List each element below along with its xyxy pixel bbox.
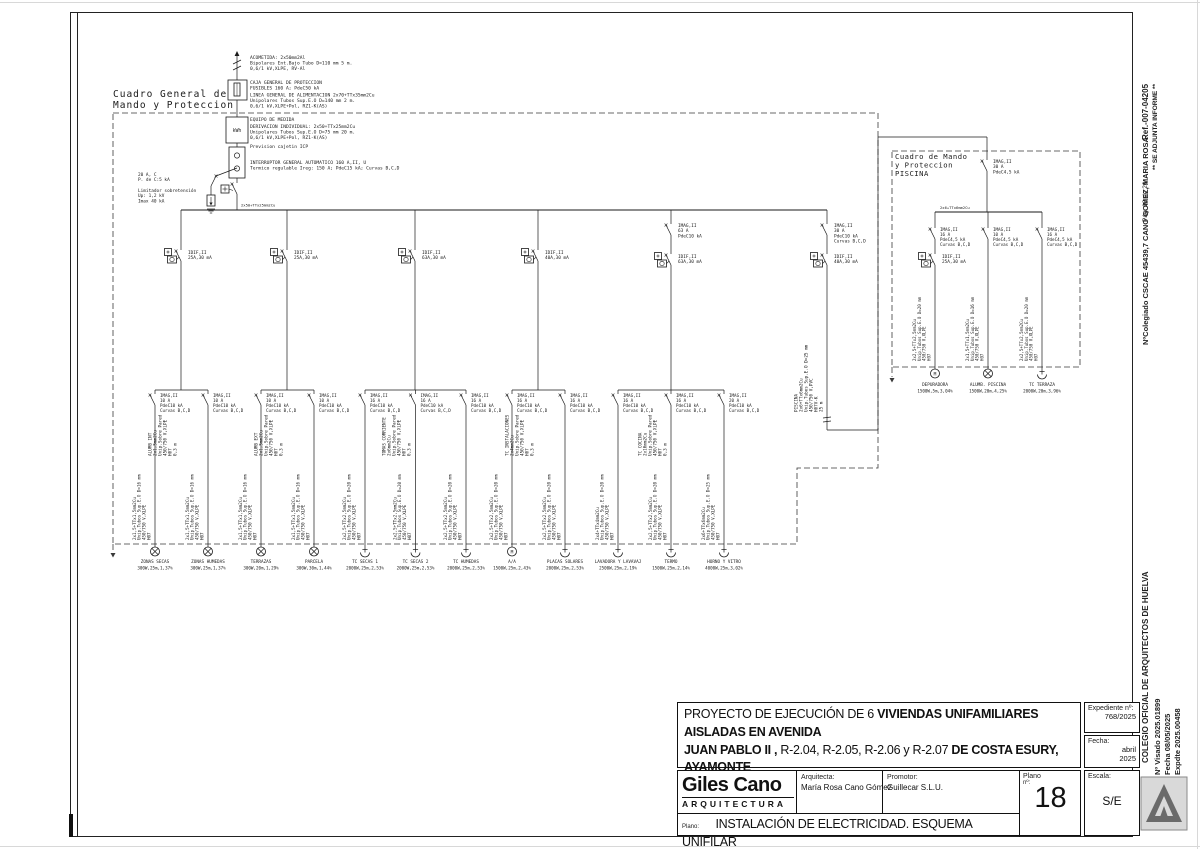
load-name: ZONAS SECAS [141, 559, 170, 565]
service-text: Unipolares Tubos Sup.E.O D=140 mm 2 m. [250, 98, 355, 104]
expediente-value: 768/2025 [1088, 712, 1136, 721]
surge-branch-wire [216, 168, 237, 176]
piscina-breaker-label: Curvas B,C,D [1047, 242, 1078, 247]
icp-box [229, 147, 245, 178]
breaker-switch-icon [203, 395, 208, 405]
differential-link [931, 261, 934, 264]
breaker-switch-icon [982, 161, 987, 171]
differential-link [177, 257, 180, 260]
plano-label: Plano [1019, 771, 1082, 780]
divider [678, 813, 1019, 814]
branch-breaker-label: PdeC10 kA [834, 233, 858, 239]
escala-value: S/E [1088, 794, 1136, 808]
expediente-box: Expediente nº: 768/2025 [1084, 702, 1140, 733]
break-tick-icon [823, 421, 831, 422]
iga-link [229, 189, 233, 191]
load-name: TERMO [665, 559, 678, 565]
cable-label-line: 0,3 m [173, 443, 179, 456]
schematic-canvas: kWhACOMETIDA: 2x50mm2AlBipolares Ent.Baj… [0, 0, 1200, 700]
breaker-switch-icon [232, 184, 237, 194]
branch-diff-label: 63A,30 mA [422, 255, 446, 261]
plano-number: 18 [1019, 782, 1082, 815]
load-value: 4000W,25m,3,02% [705, 566, 743, 571]
service-text: DERIVACION INDIVIDUAL: 2x50+TTx25mm2Cu [250, 124, 355, 130]
breaker-switch-icon [822, 225, 827, 235]
cable-label-line: H07 [980, 353, 985, 361]
circuit-breaker-label: Curvas B,C,D [570, 408, 601, 413]
piscina-breaker-label: Curvas B,C,D [940, 242, 971, 247]
fecha-value-month: abril [1088, 745, 1136, 754]
surge-breaker-icon [211, 176, 216, 186]
load-name: ALUMB. PISCINA [970, 382, 1007, 388]
service-text: Prevision cajetin ICP [250, 144, 308, 150]
cable-label-line: H07 [716, 532, 721, 540]
margin-visado: Nº Visado 2025.01899 [1153, 699, 1162, 775]
cable-label: 2x1,5+TTx1,5mm2CuUnip.Tubos Sup.E.O D=16… [185, 474, 205, 540]
surge-text: Up: 1,2 kV [138, 193, 165, 199]
cable-label: 2x2,5+TTx2,5mm2CuUnip.Tubos Sup.E.O D=20… [489, 474, 509, 540]
circuit-breaker-label: Curvas B,C,D [421, 408, 452, 413]
load-value: 2000W,20m,3,96% [1023, 389, 1061, 394]
margin-ref: Ref.-007-04205 [1141, 84, 1150, 140]
fecha-value-year: 2025 [1088, 754, 1136, 763]
branch-breaker-label: IMAG,II [678, 223, 697, 229]
cable-label: 2x6+TTx6mm2CuUnip.Tubos Sup.E.O D=25 mm4… [701, 474, 721, 540]
service-text: EQUIPO DE MEDIDA [250, 117, 294, 123]
cable-label-line: H07 [253, 532, 258, 540]
branch-breaker-label: Curvas B,C,D [834, 239, 866, 245]
fecha-box: Fecha: abril 2025 [1084, 735, 1140, 768]
circuit-breaker-label: Curvas B,C,D [160, 408, 191, 413]
differential-toroid-icon [924, 261, 928, 265]
breaker-switch-icon [256, 395, 261, 405]
circuit-breaker-label: Curvas B,C,D [319, 408, 350, 413]
load-name: PLACAS SOLARES [547, 559, 584, 565]
load-value: 2500W,25m,2,19% [599, 566, 637, 571]
load-value: 2000W,25m,2,53% [397, 566, 435, 571]
branch-diff-label: IDIF,II [188, 250, 207, 256]
cable-label: 2x1,5+TTx1,5mm2CuUnip.Tubos Sup.E.O D=16… [291, 474, 311, 540]
margin-informe: ** SE ADJUNTA INFORME ** [1152, 84, 1159, 170]
margin-colegio: COLEGIO OFICIAL DE ARQUITECTOS DE HUELVA [1141, 571, 1150, 763]
load-value: 300W,30m,1,44% [296, 566, 332, 571]
cable-label: 2x4+TTx4mm2CuUnip.Tubos Sup.E.O D=20 mm4… [595, 474, 615, 540]
circuit-breaker-label: Curvas B,C,D [623, 408, 654, 413]
cable-label: TOMAS CORRIENTE2x6mm2CuUnip.Sobre Pared4… [382, 414, 413, 456]
load-socket-icon [462, 553, 471, 558]
college-stamp-logo [1140, 776, 1188, 831]
cable-label-line: H07 [306, 532, 311, 540]
differential-link [411, 257, 414, 260]
earth-arrow-icon [890, 378, 895, 383]
promotor-label: Promotor: [887, 774, 943, 781]
differential-toroid-icon [276, 257, 280, 261]
margin-colegiado: NºColegiado CSCAE 45439,7 CANO GOMEZ, MA… [1141, 137, 1150, 345]
breaker-switch-icon [309, 395, 314, 405]
load-value: 2000W,25m,2,53% [346, 566, 384, 571]
cable-label: ALUMB INT2x1,5mm2CuUnip.Sobre Pared450/7… [148, 414, 179, 456]
cable-label: 2x1,5+TTx1,5mm2CuUnip.Tubos Sup.E.O D=16… [238, 474, 258, 540]
cable-label: PISCINA2x6+TTx6mm2CuUnip.Tubos Sup.E.O D… [794, 344, 825, 412]
differential-toroid-icon [660, 261, 664, 265]
branch-diff-label: 40A,30 mA [545, 255, 569, 261]
cable-label: 2x2,5+TTx2,5mm2CuUnip.Tubos Sup.E.O D=20… [542, 474, 562, 540]
frame-corner-mark [69, 814, 73, 837]
branch-diff-label: 25A,30 mA [294, 255, 318, 261]
cable-label: 2x1,5+TTx1,5mm2CuUnip.Tubos Sup.E.O D=16… [965, 296, 984, 361]
firm-subtitle: ARQUITECTURA [682, 799, 794, 809]
cable-label: 2x2,5+TTx2,5mm2CuUnip.Tubos Sup.E.O D=20… [392, 474, 412, 540]
branch-diff-label: IDIF,II [678, 254, 697, 260]
piscina-panel-title: PISCINA [895, 169, 929, 178]
service-text: ACOMETIDA: 2x50mm2Al [250, 55, 306, 61]
earth-arrow-icon [111, 553, 116, 558]
load-socket-icon [561, 553, 570, 558]
branch-diff-label: IDIF,II [834, 254, 853, 260]
branch-breaker-label: PdeC10 kA [678, 233, 702, 239]
cable-label: 2x2,5+TTx2,5mm2CuUnip.Tubos Sup.E.O D=20… [912, 296, 931, 361]
service-text: FUSIBLES 160 A; PdeC50 kA [250, 86, 319, 92]
load-value: 2000W,25m,2,53% [546, 566, 584, 571]
load-name: PARCELA [305, 559, 324, 565]
branch-diff-label: IDIF,II [422, 250, 441, 256]
load-socket-icon [361, 553, 370, 558]
service-text: LINEA GENERAL DE ALIMENTACION 2x70+TTx35… [250, 93, 375, 99]
cable-label: 2x2,5+TTx2,5mm2CuUnip.Tubos Sup.E.O D=20… [1019, 296, 1038, 361]
load-name: DEPURADORA [922, 382, 948, 388]
load-socket-icon [411, 553, 420, 558]
load-name: TC TERRAZA [1029, 382, 1055, 388]
circuit-breaker-label: Curvas B,C,D [471, 408, 502, 413]
differential-link [667, 261, 670, 264]
circuit-breaker-label: Curvas B,C,D [370, 408, 401, 413]
breaker-switch-icon [666, 395, 671, 405]
cable-label-line: H07 [407, 532, 412, 540]
branch-breaker-label: 63 A [678, 228, 689, 234]
escala-box: Escala: S/E [1084, 770, 1140, 836]
firm-logo: Giles Cano ARQUITECTURA [682, 774, 794, 809]
main-panel-title: Cuadro General de [113, 89, 227, 100]
breaker-switch-icon [666, 225, 671, 235]
sheet-title-cell: Plano: INSTALACIÓN DE ELECTRICIDAD. ESQU… [682, 815, 1017, 851]
expediente-label: Expediente nº: [1088, 705, 1136, 712]
load-socket-icon [614, 553, 623, 558]
circuit-breaker-label: Curvas B,C,D [266, 408, 297, 413]
load-motor-letter: M [934, 371, 937, 377]
differential-toroid-icon [527, 257, 531, 261]
firm-name: Giles Cano [682, 774, 794, 798]
load-name: ZONAS HUMEDAS [191, 559, 225, 565]
service-text: Bipolares Ent.Bajo Tubo D=110 mm 5 m. [250, 61, 352, 67]
cable-label: 2x1,5+TTx1,5mm2CuUnip.Tubos Sup.E.O D=16… [132, 474, 152, 540]
load-name: TC SECAS 1 [352, 559, 378, 565]
cable-label-line: H07 [357, 532, 362, 540]
service-text: INTERRUPTOR GENERAL AUTOMATICO 160 A,II,… [250, 160, 366, 166]
load-value: 300W,25m,1,37% [190, 566, 226, 571]
circuit-breaker-label: Curvas B,C,D [676, 408, 707, 413]
branch-diff-label: IDIF,II [294, 250, 313, 256]
load-name: TC SECAS 2 [403, 559, 429, 565]
cable-label-line: H07 [147, 532, 152, 540]
cable-label-line: H07 [610, 532, 615, 540]
circuit-breaker-label: Curvas B,C,D [213, 408, 244, 413]
piscina-feed-breaker-label: PdeC4,5 kA [993, 169, 1020, 175]
branch-diff-label: 40A,30 mA [834, 259, 858, 265]
cable-label-line: 0,3 m [663, 443, 669, 456]
piscina-feed-breaker-label: 30 A [993, 164, 1004, 170]
branch-breaker-label: IMAG,II [834, 223, 853, 229]
branch-diff-label: 25A,30 mA [188, 255, 212, 261]
piscina-busbar-label: 2x6+TTx6mm2Cu [940, 205, 970, 210]
breaker-switch-icon [411, 395, 416, 405]
load-socket-icon [720, 553, 729, 558]
differential-link [534, 257, 537, 260]
service-text: Termico regulable Ireg: 150 A; PdeC15 kA… [250, 166, 400, 172]
promotor-name: Guillecar S.L.U. [887, 783, 943, 792]
load-name: HORNO Y VITRO [707, 559, 741, 565]
meter-kwh-label: kWh [233, 128, 242, 134]
differential-link [823, 261, 826, 264]
busbar-label: 2x50+TTx25mm2Cu [241, 203, 275, 208]
load-value: 1500W,25m,2,43% [493, 566, 531, 571]
service-text: 0,6/1 kV,XLPE+Pol, RZ1-K(AS) [250, 135, 327, 141]
main-panel-title: Mando y Proteccion [113, 100, 234, 111]
service-text: 0,6/1 kV,XLPE+Pol, RZ1-K(AS) [250, 104, 327, 110]
fecha-label: Fecha: [1088, 738, 1136, 745]
breaker-switch-icon [360, 395, 365, 405]
surge-text: P. de C:5 kA [138, 177, 170, 183]
service-text: CAJA GENERAL DE PROTECCION [250, 80, 322, 86]
breaker-switch-icon [930, 229, 935, 239]
plano-number-cell: Plano nº: 18 [1019, 771, 1082, 837]
sheet-title: INSTALACIÓN DE ELECTRICIDAD. ESQUEMA UNI… [682, 817, 972, 849]
signature-block: Giles Cano ARQUITECTURA Arquitecta: Marí… [677, 770, 1081, 836]
load-socket-icon [1038, 375, 1047, 380]
cable-label-line: 0,3 m [279, 443, 285, 456]
sheet-title-label: Plano: [682, 824, 699, 830]
promotor-cell: Promotor: Guillecar S.L.U. [887, 774, 943, 792]
cable-label-line: H07 [927, 353, 932, 361]
breaker-switch-icon [507, 395, 512, 405]
differential-link [283, 257, 286, 260]
load-socket-icon [667, 553, 676, 558]
arquitecta-name: María Rosa Cano Gómez [801, 783, 892, 792]
breaker-switch-icon [560, 395, 565, 405]
service-text: 0,6/1 kV,XLPE, RV-Al [250, 66, 306, 72]
differential-toroid-icon [170, 257, 174, 261]
surge-text: Imax 40 kA [138, 198, 165, 204]
cable-label: 2x2,5+TTx2,5mm2CuUnip.Tubos Sup.E.O D=20… [342, 474, 362, 540]
icp-terminal-icon [234, 153, 239, 158]
differential-toroid-icon [404, 257, 408, 261]
surge-text: Limitador sobretensión [138, 187, 197, 194]
surge-text: 20 A, C [138, 172, 157, 178]
load-value: 1500W,20m,4,25% [969, 389, 1007, 394]
load-name: LAVADORA Y LAVAVAJ [595, 559, 642, 565]
breaker-switch-icon [613, 395, 618, 405]
differential-toroid-icon [816, 261, 820, 265]
escala-label: Escala: [1088, 773, 1136, 780]
breaker-switch-icon [983, 229, 988, 239]
piscina-diff-label: 25A,30 mA [942, 259, 966, 265]
cable-label-line: H07 [504, 532, 509, 540]
cable-label: 2x2,5+TTx2,5mm2CuUnip.Tubos Sup.E.O D=20… [648, 474, 668, 540]
cable-label-line: H07 [1034, 353, 1039, 361]
project-title-box: PROYECTO DE EJECUCIÓN DE 6 VIVIENDAS UNI… [677, 702, 1081, 768]
cable-label: ALUMB EXT2x1,5mm2CuUnip.Sobre Pared450/7… [254, 414, 285, 456]
break-tick-icon [823, 417, 831, 418]
breaker-switch-icon [461, 395, 466, 405]
load-value: 300W,20m,1,29% [243, 566, 279, 571]
divider [882, 771, 883, 813]
load-value: 300W,25m,1,37% [137, 566, 173, 571]
cable-label-line: H07 [557, 532, 562, 540]
cable-label-line: H07 [663, 532, 668, 540]
divider [796, 771, 797, 813]
cable-label-line: 0,3 m [407, 443, 413, 456]
load-value: 1500W,5m,3,04% [917, 389, 953, 394]
piscina-breaker-label: Curvas B,C,D [993, 242, 1024, 247]
margin-visado-fecha: Fecha 08/05/2025 [1163, 714, 1172, 775]
breaker-switch-icon [150, 395, 155, 405]
cable-label: TC INSTALACIONES2x4mm2CuUnip.Sobre Pared… [505, 414, 536, 456]
arquitecta-cell: Arquitecta: María Rosa Cano Gómez [801, 774, 892, 792]
branch-breaker-label: 30 A [834, 228, 845, 234]
arquitecta-label: Arquitecta: [801, 774, 892, 781]
piscina-diff-label: IDIF,II [942, 254, 961, 260]
surge-limiter-icon [209, 203, 212, 206]
service-text: Unipolares Tubos Sup.E.O D=75 mm 20 m. [250, 130, 355, 136]
cable-label-line: 25 m [819, 401, 825, 412]
load-name: A/A [508, 559, 516, 565]
branch-diff-label: 63A,30 mA [678, 259, 702, 265]
piscina-feed-breaker-label: IMAG,II [993, 159, 1012, 165]
cable-label: 2x2,5+TTx2,5mm2CuUnip.Tubos Sup.E.O D=20… [443, 474, 463, 540]
load-value: 1500W,25m,2,14% [652, 566, 690, 571]
circuit-breaker-label: Curvas B,C,D [729, 408, 760, 413]
page-edge-bottom [0, 846, 1200, 847]
branch-diff-label: IDIF,II [545, 250, 564, 256]
cable-label-line: H07 [458, 532, 463, 540]
cable-label-line: H07 [200, 532, 205, 540]
margin-expdte: Expdte 2025.00458 [1173, 708, 1182, 775]
cable-label: TC COCINA2x10mm2CuUnip.Sobre Pared450/75… [638, 414, 669, 456]
circuit-breaker-label: Curvas B,C,D [517, 408, 548, 413]
load-value: 2000W,25m,2,53% [447, 566, 485, 571]
load-motor-letter: M [511, 549, 514, 555]
load-name: TERRAZAS [251, 559, 272, 565]
breaker-switch-icon [1037, 229, 1042, 239]
load-name: TC HUMEDAS [453, 559, 479, 565]
project-title-line1: PROYECTO DE EJECUCIÓN DE 6 VIVIENDAS UNI… [684, 706, 1074, 742]
cable-label-line: 0,3 m [530, 443, 536, 456]
breaker-switch-icon [719, 395, 724, 405]
